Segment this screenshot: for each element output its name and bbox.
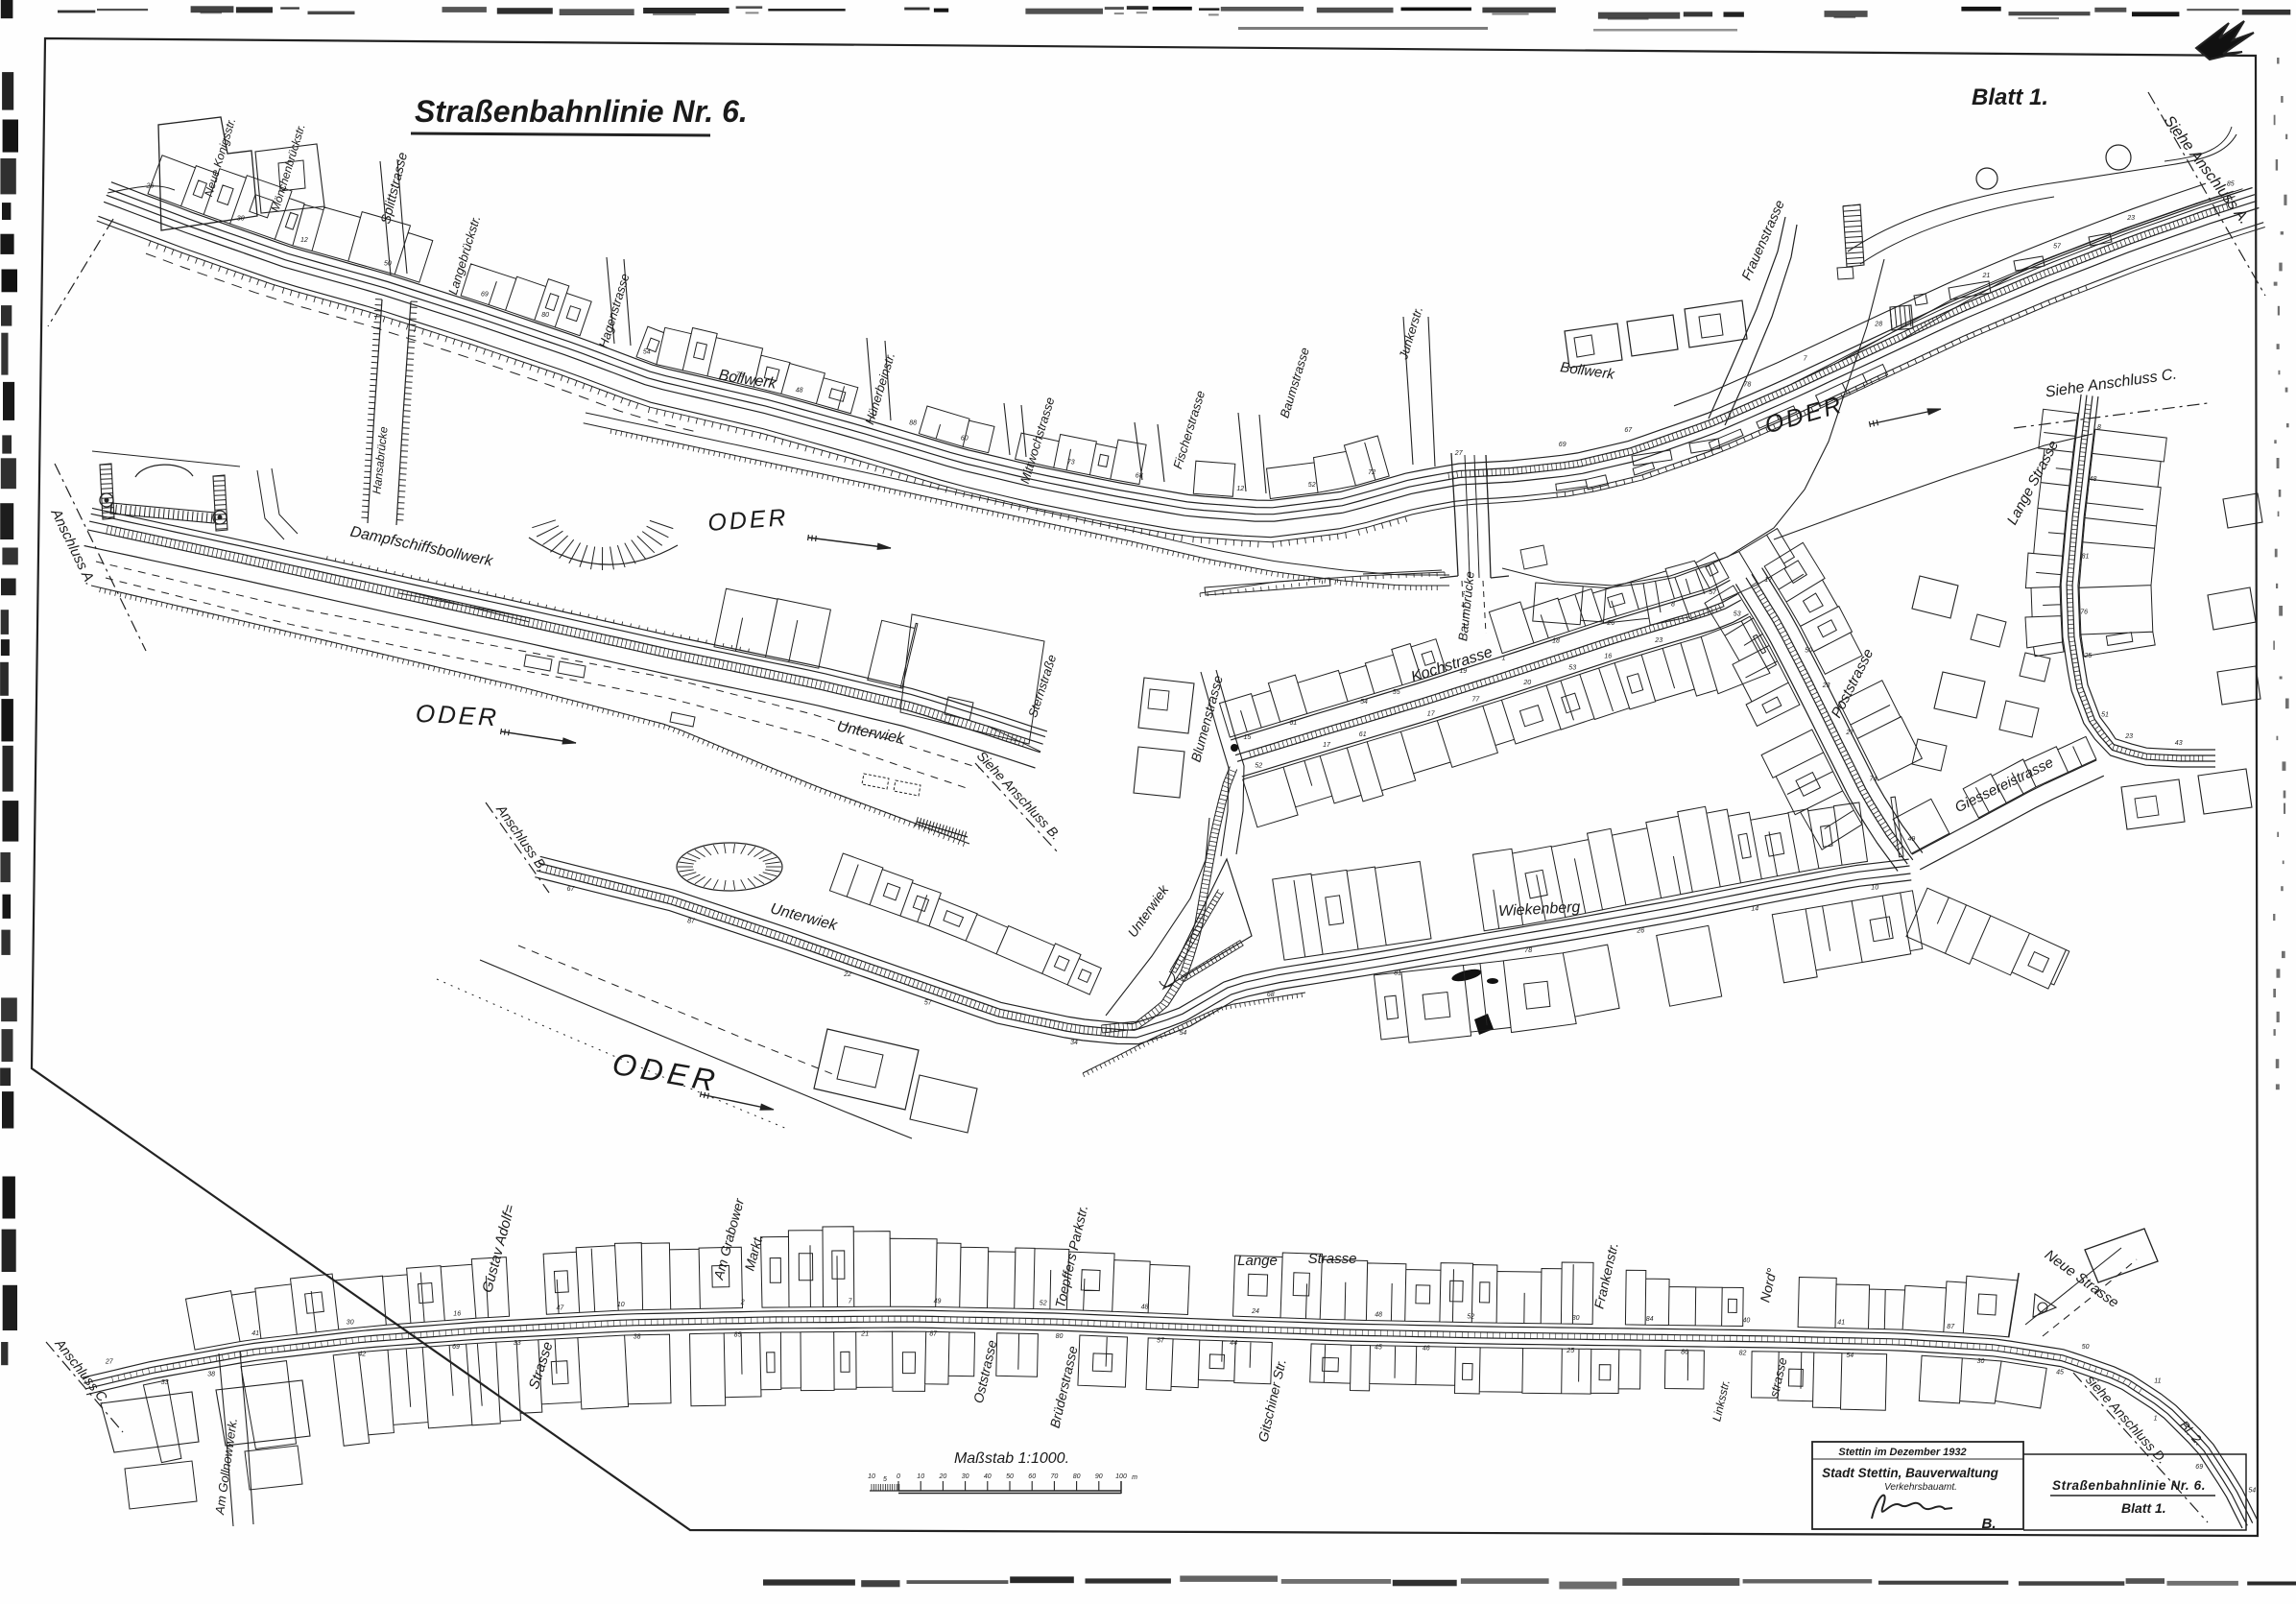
svg-text:52: 52 (1040, 1301, 1047, 1307)
svg-text:54: 54 (1846, 1353, 1854, 1359)
svg-text:m: m (1132, 1474, 1137, 1481)
svg-text:57: 57 (924, 999, 933, 1006)
svg-text:Straßenbahnlinie Nr. 6.: Straßenbahnlinie Nr. 6. (415, 94, 748, 129)
svg-text:70: 70 (1051, 1473, 1059, 1480)
svg-text:80: 80 (1073, 1473, 1081, 1480)
svg-text:78: 78 (1524, 947, 1532, 954)
svg-text:50: 50 (2082, 1344, 2090, 1351)
svg-text:Blatt 1.: Blatt 1. (1972, 84, 2048, 110)
svg-text:88: 88 (909, 420, 917, 427)
svg-text:68: 68 (1267, 992, 1275, 998)
svg-text:69: 69 (1559, 442, 1567, 448)
svg-text:85: 85 (734, 1332, 742, 1339)
svg-text:40: 40 (984, 1473, 992, 1480)
svg-text:45: 45 (2056, 1370, 2064, 1377)
svg-text:10: 10 (868, 1473, 875, 1480)
svg-text:77: 77 (1472, 696, 1481, 703)
svg-text:17: 17 (1323, 742, 1331, 749)
svg-text:Verkehrsbauamt.: Verkehrsbauamt. (1884, 1482, 1957, 1493)
svg-text:Stettin im Dezember 1932: Stettin im Dezember 1932 (1838, 1447, 1966, 1458)
svg-text:54: 54 (1180, 1030, 1187, 1037)
svg-text:81: 81 (2082, 554, 2090, 561)
svg-text:55: 55 (1393, 689, 1400, 696)
svg-text:Blatt 1.: Blatt 1. (2121, 1500, 2166, 1516)
svg-text:Stadt Stettin, Bauverwaltung: Stadt Stettin, Bauverwaltung (1822, 1466, 1999, 1480)
svg-text:30: 30 (1977, 1358, 1985, 1365)
svg-text:17: 17 (1764, 577, 1773, 584)
svg-text:52: 52 (1308, 482, 1316, 489)
svg-text:100: 100 (1115, 1473, 1127, 1480)
svg-text:ODER: ODER (415, 699, 500, 732)
svg-text:38: 38 (207, 1372, 215, 1378)
svg-text:ODER: ODER (706, 504, 789, 537)
svg-text:25: 25 (1566, 1348, 1574, 1354)
svg-text:Maßstab 1:1000.: Maßstab 1:1000. (954, 1450, 1069, 1467)
svg-text:74: 74 (1870, 777, 1877, 783)
svg-text:34: 34 (1070, 1040, 1078, 1046)
svg-text:0: 0 (897, 1473, 900, 1480)
svg-text:Straßenbahnlinie Nr. 6.: Straßenbahnlinie Nr. 6. (2052, 1478, 2206, 1493)
svg-text:27: 27 (1454, 450, 1464, 457)
svg-text:11: 11 (2154, 1378, 2161, 1385)
svg-text:87: 87 (687, 919, 696, 925)
svg-text:8: 8 (1671, 601, 1675, 608)
svg-text:49: 49 (1908, 836, 1916, 843)
svg-text:85: 85 (2227, 180, 2235, 187)
svg-text:23: 23 (1654, 637, 1662, 644)
svg-text:54: 54 (2248, 1488, 2256, 1495)
svg-text:21: 21 (860, 1330, 869, 1337)
svg-text:69: 69 (2195, 1464, 2203, 1471)
svg-text:76: 76 (736, 372, 744, 379)
svg-text:33: 33 (514, 1340, 521, 1347)
svg-text:76: 76 (2080, 610, 2088, 616)
svg-text:Strasse: Strasse (1308, 1251, 1357, 1267)
svg-text:72: 72 (1368, 469, 1375, 476)
svg-text:12: 12 (300, 237, 308, 244)
svg-text:86: 86 (1681, 1350, 1688, 1356)
svg-text:12: 12 (1236, 486, 1244, 492)
svg-text:80: 80 (1056, 1333, 1064, 1340)
svg-text:10: 10 (917, 1473, 924, 1480)
svg-text:26: 26 (146, 182, 155, 189)
svg-text:46: 46 (1423, 1346, 1430, 1353)
svg-text:61: 61 (1359, 731, 1367, 738)
svg-text:30: 30 (347, 1320, 354, 1327)
svg-text:26: 26 (1636, 928, 1644, 935)
svg-text:48: 48 (1141, 1305, 1149, 1311)
svg-text:50: 50 (1006, 1473, 1014, 1480)
svg-text:33: 33 (161, 1379, 169, 1386)
svg-text:80: 80 (541, 312, 549, 319)
svg-text:38: 38 (634, 1334, 641, 1341)
svg-text:53: 53 (1734, 611, 1741, 618)
svg-text:16: 16 (453, 1311, 461, 1318)
svg-text:81: 81 (1394, 970, 1401, 977)
svg-text:24: 24 (1251, 1308, 1259, 1315)
svg-text:8: 8 (2097, 424, 2101, 431)
svg-text:60: 60 (961, 436, 969, 443)
svg-text:17: 17 (1427, 710, 1436, 717)
svg-text:22: 22 (843, 971, 851, 978)
svg-text:73: 73 (1067, 460, 1075, 467)
svg-text:57: 57 (1709, 589, 1717, 596)
svg-text:30: 30 (1572, 1315, 1580, 1322)
svg-text:67: 67 (567, 886, 576, 893)
svg-text:28: 28 (1874, 322, 1882, 328)
svg-text:20: 20 (1522, 680, 1531, 686)
svg-text:26: 26 (1606, 620, 1614, 627)
svg-text:18: 18 (1552, 638, 1560, 645)
svg-text:40: 40 (1743, 1318, 1751, 1325)
svg-text:54: 54 (1360, 699, 1368, 706)
svg-text:15: 15 (1244, 734, 1252, 741)
svg-text:53: 53 (1568, 665, 1576, 672)
svg-text:48: 48 (2090, 476, 2097, 483)
svg-text:1: 1 (1502, 656, 1506, 662)
svg-text:51: 51 (2101, 712, 2109, 719)
svg-text:52: 52 (1255, 763, 1262, 770)
svg-text:27: 27 (1845, 730, 1854, 736)
svg-text:21: 21 (1982, 273, 1991, 279)
svg-text:B.: B. (1982, 1516, 1997, 1532)
svg-text:82: 82 (1739, 1351, 1747, 1357)
svg-text:68: 68 (1136, 472, 1143, 479)
svg-text:69: 69 (481, 292, 489, 299)
svg-text:52: 52 (1467, 1314, 1474, 1321)
svg-text:57: 57 (2053, 244, 2062, 251)
svg-text:Lange: Lange (1237, 1253, 1278, 1269)
svg-text:23: 23 (1822, 682, 1830, 689)
svg-text:44: 44 (1230, 1340, 1237, 1347)
svg-text:2: 2 (740, 1300, 745, 1306)
svg-text:48: 48 (796, 387, 803, 394)
svg-text:45: 45 (1375, 1345, 1382, 1352)
svg-text:47: 47 (557, 1305, 565, 1312)
svg-text:49: 49 (934, 1299, 942, 1305)
svg-text:69: 69 (452, 1344, 460, 1351)
svg-text:50: 50 (384, 260, 392, 267)
svg-text:1: 1 (2154, 1416, 2158, 1423)
svg-text:61: 61 (1289, 720, 1297, 727)
svg-text:27: 27 (105, 1358, 114, 1365)
svg-text:54: 54 (643, 348, 651, 355)
svg-text:43: 43 (2175, 740, 2183, 747)
svg-text:42: 42 (358, 1351, 366, 1357)
svg-text:50: 50 (1805, 648, 1812, 655)
svg-text:23: 23 (2126, 215, 2135, 222)
svg-text:48: 48 (1375, 1312, 1382, 1319)
svg-text:78: 78 (1744, 382, 1752, 389)
svg-text:90: 90 (1095, 1473, 1103, 1480)
svg-text:25: 25 (2084, 653, 2093, 659)
svg-text:19: 19 (1459, 668, 1467, 675)
svg-text:84: 84 (1646, 1316, 1654, 1323)
svg-text:10: 10 (1871, 884, 1878, 891)
svg-text:5: 5 (883, 1476, 887, 1483)
svg-text:20: 20 (939, 1473, 947, 1480)
svg-text:16: 16 (1604, 653, 1612, 659)
svg-text:57: 57 (1157, 1337, 1165, 1344)
svg-text:41: 41 (1837, 1320, 1845, 1327)
svg-text:41: 41 (251, 1330, 259, 1337)
svg-text:67: 67 (1624, 427, 1633, 434)
svg-text:23: 23 (2124, 733, 2133, 740)
svg-text:14: 14 (1751, 906, 1758, 913)
svg-text:87: 87 (929, 1330, 938, 1337)
svg-text:87: 87 (1947, 1324, 1955, 1330)
svg-text:60: 60 (1028, 1473, 1036, 1480)
svg-text:10: 10 (617, 1302, 625, 1308)
svg-text:30: 30 (237, 216, 245, 223)
svg-text:30: 30 (962, 1473, 969, 1480)
